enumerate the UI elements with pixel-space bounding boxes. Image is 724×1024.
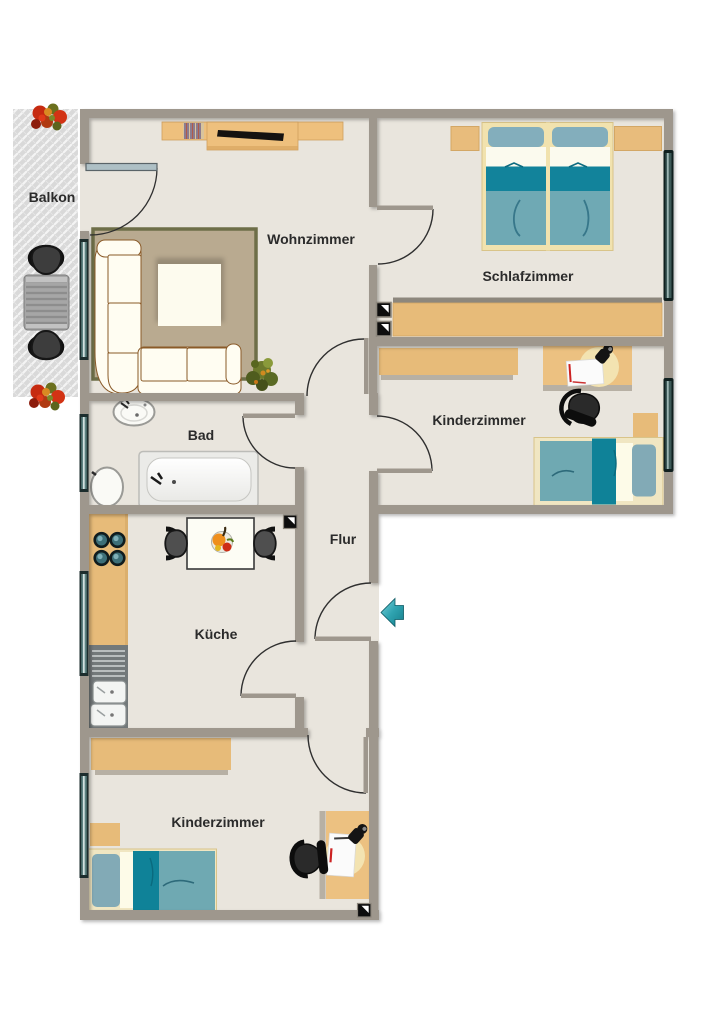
svg-text:Bad: Bad — [188, 427, 214, 443]
svg-text:Küche: Küche — [195, 626, 238, 642]
svg-text:Kinderzimmer: Kinderzimmer — [432, 412, 526, 428]
svg-text:Wohnzimmer: Wohnzimmer — [267, 231, 355, 247]
svg-text:Kinderzimmer: Kinderzimmer — [171, 814, 265, 830]
svg-text:Schlafzimmer: Schlafzimmer — [482, 268, 574, 284]
svg-text:Balkon: Balkon — [29, 189, 76, 205]
svg-text:Flur: Flur — [330, 531, 357, 547]
